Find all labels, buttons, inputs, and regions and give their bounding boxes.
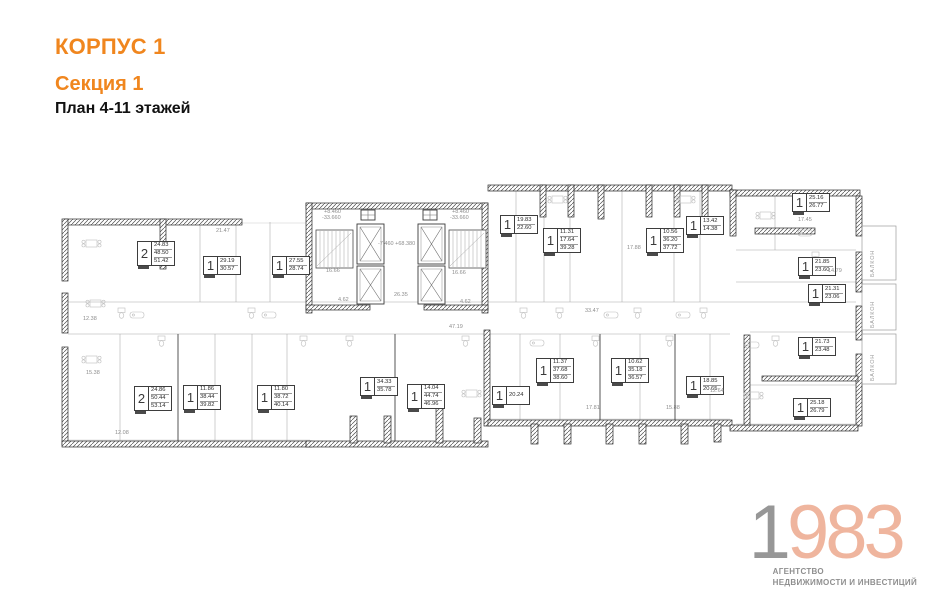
agency-logo: 1983 АГЕНТСТВО НЕДВИЖИМОСТИ И ИНВЕСТИЦИЙ (749, 502, 917, 588)
elevator-shafts (357, 210, 445, 304)
corridor-lines (68, 191, 856, 440)
logo-year: 1983 (749, 502, 917, 564)
logo-year-gray: 1 (749, 490, 787, 575)
page: КОРПУС 1 Секция 1 План 4-11 этажей (0, 0, 941, 600)
furniture-layer (82, 196, 819, 399)
balconies (862, 226, 896, 384)
structural-walls (62, 185, 862, 447)
logo-year-colored: 983 (787, 490, 902, 575)
logo-agency-line2: НЕДВИЖИМОСТИ И ИНВЕСТИЦИЙ (773, 578, 917, 588)
stairwells (316, 230, 486, 268)
